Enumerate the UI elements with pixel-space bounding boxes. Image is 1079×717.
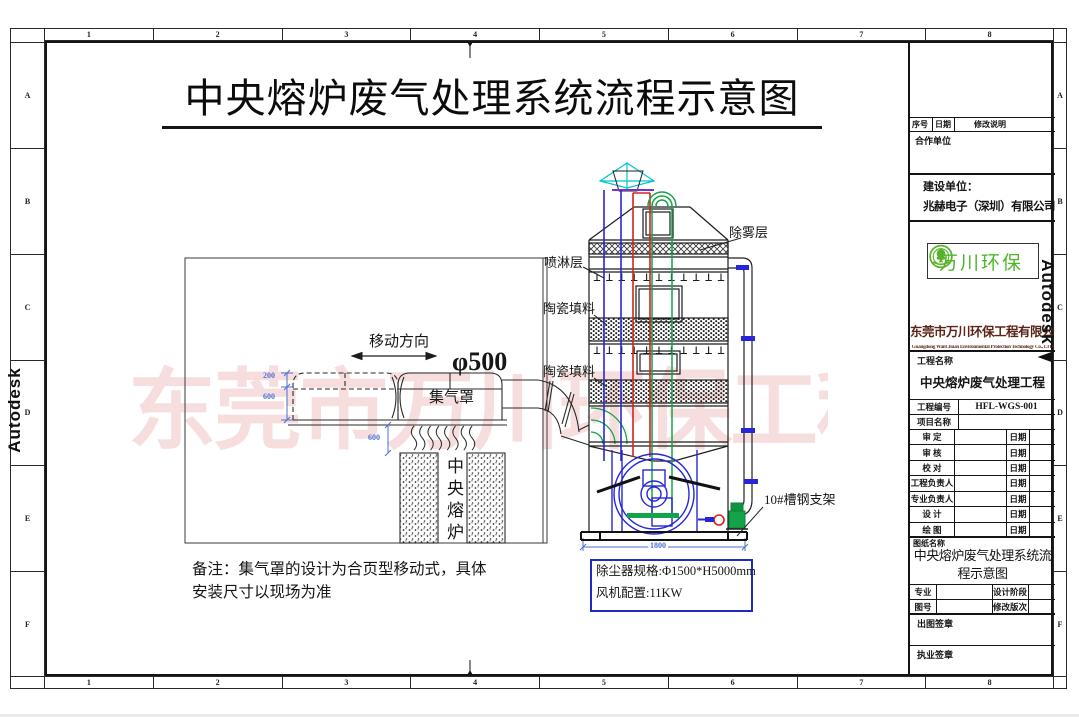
- ruler-cell: 4: [410, 677, 539, 688]
- sign-name-cell: [955, 476, 1007, 490]
- ruler-band-top: 12345678: [10, 28, 1067, 41]
- owner-value: 兆赫电子（深圳）有限公司: [923, 201, 1055, 214]
- ruler-cell: 5: [539, 29, 668, 40]
- partner-label: 合作单位: [915, 136, 951, 146]
- autodesk-watermark-text: Autodesk: [1038, 259, 1057, 344]
- ruler-cell: F: [1054, 571, 1066, 677]
- project-name-box: 工程名称 中央熔炉废气处理工程: [910, 352, 1055, 400]
- revision-empty-box: [910, 41, 1055, 118]
- stamp2-label: 执业签章: [917, 650, 953, 660]
- sign-name-cell: [955, 430, 1007, 444]
- sign-date-label: 日期: [1007, 507, 1030, 521]
- ruler-cell: 7: [797, 29, 926, 40]
- ruler-cell: E: [11, 465, 44, 571]
- design-company-cn: 东莞市万川环保工程有限公司: [910, 325, 1055, 339]
- rev-seq-label: 序号: [912, 120, 928, 129]
- ruler-cell: 6: [668, 29, 797, 40]
- signature-row: 专业负责人日期: [910, 492, 1055, 507]
- design-company-box: 万川环保 东莞市万川环保工程有限公司 Guangdong WanChuan En…: [910, 222, 1055, 352]
- sheet-no-label: 图号: [910, 603, 936, 613]
- ruler-cell: 2: [153, 29, 282, 40]
- signature-table: 审 定日期审 核日期校 对日期工程负责人日期专业负责人日期设 计日期绘 图日期: [910, 430, 1055, 538]
- signature-row: 审 定日期: [910, 430, 1055, 445]
- sign-name-cell: [955, 445, 1007, 459]
- logo-box: 万川环保: [927, 243, 1039, 279]
- ruler-cell: B: [11, 148, 44, 254]
- sign-role-label: 校 对: [910, 461, 955, 475]
- project-no-row: 工程编号 HFL-WGS-001: [910, 400, 1055, 415]
- sign-date-label: 日期: [1007, 445, 1030, 459]
- autodesk-watermark-right: Autodesk: [1035, 247, 1057, 357]
- stamp2-box: 执业签章: [910, 646, 1055, 676]
- ruler-cell: 7: [797, 677, 926, 688]
- sheet-no-row: 图号 修改版次: [910, 600, 1055, 615]
- partner-box: 合作单位: [910, 132, 1055, 175]
- sign-role-label: 工程负责人: [910, 476, 955, 490]
- ruler-cell: B: [1054, 148, 1066, 254]
- drawing-name-box: 图纸名称 中央熔炉废气处理系统流程示意图: [910, 538, 1055, 585]
- sign-role-label: 专业负责人: [910, 492, 955, 506]
- major-row: 专业 设计阶段: [910, 585, 1055, 600]
- owner-box: 建设单位： 兆赫电子（深圳）有限公司: [910, 175, 1055, 222]
- ruler-cell: A: [1054, 42, 1066, 148]
- revision-header-row: 序号 日期 修改说明: [910, 118, 1055, 132]
- ruler-cell: 6: [668, 677, 797, 688]
- sign-date-cell: [1030, 430, 1055, 444]
- sign-name-cell: [955, 461, 1007, 475]
- sign-date-cell: [1030, 523, 1055, 538]
- item-name-row: 项目名称: [910, 415, 1055, 430]
- ruler-cell: 8: [925, 29, 1054, 40]
- inner-frame: [45, 41, 1053, 676]
- sign-role-label: 审 核: [910, 445, 955, 459]
- title-block: 序号 日期 修改说明 合作单位 建设单位： 兆赫电子（深圳）有限公司 万川环保 …: [908, 41, 1053, 676]
- sign-date-cell: [1030, 476, 1055, 490]
- sign-date-label: 日期: [1007, 492, 1030, 506]
- ruler-cell: A: [11, 42, 44, 148]
- ruler-cell: D: [1054, 360, 1066, 466]
- ruler-cell: 5: [539, 677, 668, 688]
- ruler-cell: E: [1054, 465, 1066, 571]
- ruler-cell: 3: [282, 29, 411, 40]
- item-name-label: 项目名称: [910, 418, 958, 428]
- cad-sheet: 东莞市万川环保工程有限公司: [0, 0, 1079, 717]
- signature-row: 设 计日期: [910, 507, 1055, 522]
- sign-date-label: 日期: [1007, 430, 1030, 444]
- signature-row: 审 核日期: [910, 445, 1055, 460]
- rev-date-label: 日期: [935, 120, 951, 129]
- signature-row: 工程负责人日期: [910, 476, 1055, 491]
- ruler-cell: F: [11, 571, 44, 677]
- sign-name-cell: [955, 523, 1007, 538]
- sign-date-cell: [1030, 445, 1055, 459]
- ruler-band-right: ABCDEF: [1053, 28, 1067, 689]
- sign-date-label: 日期: [1007, 523, 1030, 538]
- sign-role-label: 审 定: [910, 430, 955, 444]
- ruler-band-bottom: 12345678: [10, 676, 1067, 689]
- ruler-cell: 8: [925, 677, 1054, 688]
- ruler-cell: 4: [410, 29, 539, 40]
- autodesk-watermark-left: Autodesk: [5, 350, 27, 470]
- ruler-cell: 2: [153, 677, 282, 688]
- stage-label: 设计阶段: [992, 588, 1028, 598]
- project-no-label: 工程编号: [910, 403, 958, 413]
- ruler-cell: C: [11, 254, 44, 360]
- sign-role-label: 设 计: [910, 507, 955, 521]
- design-company-en: Guangdong WanChuan Environmental Protect…: [910, 345, 1055, 351]
- project-name-value: 中央熔炉废气处理工程: [910, 376, 1055, 390]
- sign-role-label: 绘 图: [910, 523, 955, 538]
- stamp1-box: 出图签章: [910, 615, 1055, 646]
- major-label: 专业: [910, 588, 936, 598]
- sign-date-label: 日期: [1007, 476, 1030, 490]
- signature-row: 校 对日期: [910, 461, 1055, 476]
- sign-date-cell: [1030, 507, 1055, 521]
- drawing-name-value: 中央熔炉废气处理系统流程示意图: [912, 547, 1053, 583]
- rev-no-label: 修改版次: [992, 603, 1028, 613]
- owner-label: 建设单位：: [923, 181, 978, 194]
- project-no-value: HFL-WGS-001: [958, 402, 1055, 413]
- sign-date-cell: [1030, 492, 1055, 506]
- stamp1-label: 出图签章: [917, 619, 953, 629]
- signature-row: 绘 图日期: [910, 523, 1055, 538]
- autodesk-watermark-text: Autodesk: [5, 367, 24, 452]
- rev-desc-label: 修改说明: [974, 120, 1006, 129]
- ruler-cell: 3: [282, 677, 411, 688]
- wanchuan-logo-icon: [928, 244, 954, 270]
- sign-name-cell: [955, 507, 1007, 521]
- project-name-label: 工程名称: [917, 356, 953, 366]
- sign-name-cell: [955, 492, 1007, 506]
- sign-date-label: 日期: [1007, 461, 1030, 475]
- sign-date-cell: [1030, 461, 1055, 475]
